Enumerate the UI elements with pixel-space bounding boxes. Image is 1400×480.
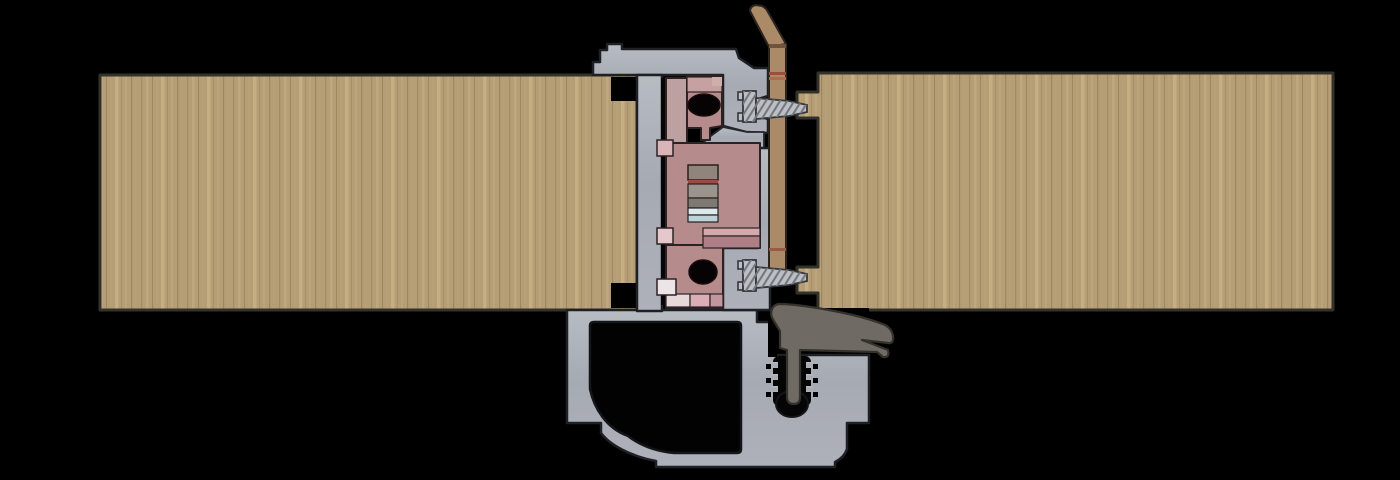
channel-notch [813, 378, 818, 383]
filler-strip-joint-line [769, 72, 786, 75]
filler-strip-joint-line [769, 248, 786, 251]
filler-strip-joint-line [769, 77, 786, 80]
channel-tooth [771, 374, 778, 380]
adjuster-band [688, 165, 718, 180]
mechanism-bore-bottom [689, 260, 717, 284]
profile-left-bar [637, 75, 662, 311]
adjuster-stack [688, 165, 718, 222]
channel-tooth [806, 362, 813, 368]
channel-tooth [806, 386, 813, 392]
adjuster-band [688, 184, 718, 198]
mechanism-corner-step [712, 77, 722, 86]
adjuster-band [688, 208, 718, 215]
channel-notch [766, 378, 771, 383]
filler-strip-joint [769, 44, 786, 48]
screw-head-hatch [743, 91, 756, 122]
left-wood-panel [100, 75, 637, 310]
channel-notch [813, 392, 818, 397]
cad-viewport [0, 0, 1400, 480]
mechanism-tab [657, 140, 673, 156]
adjuster-band [688, 180, 718, 184]
screw-head-hatch [743, 260, 756, 291]
mechanism-bar-highlight [703, 228, 760, 236]
adjuster-band [688, 215, 718, 222]
channel-notch [766, 392, 771, 397]
mechanism-tab [657, 279, 676, 295]
mechanism-bottom-strip [710, 294, 723, 307]
mechanism-bore-top [688, 94, 720, 116]
section-render [0, 0, 1400, 480]
left-panel-bottom-rabbet [611, 283, 637, 308]
channel-tooth [771, 362, 778, 368]
left-panel-top-rabbet [611, 77, 637, 101]
mechanism-bar [703, 236, 760, 248]
channel-notch [813, 364, 818, 369]
channel-tooth [771, 386, 778, 392]
channel-notch [766, 364, 771, 369]
mechanism-bottom-strip [690, 294, 710, 307]
mechanism-tab [657, 228, 673, 244]
adjuster-band [688, 198, 718, 208]
right-wood-panel [797, 73, 1333, 310]
mechanism-bottom-strip-light [666, 294, 690, 307]
channel-tooth [806, 374, 813, 380]
